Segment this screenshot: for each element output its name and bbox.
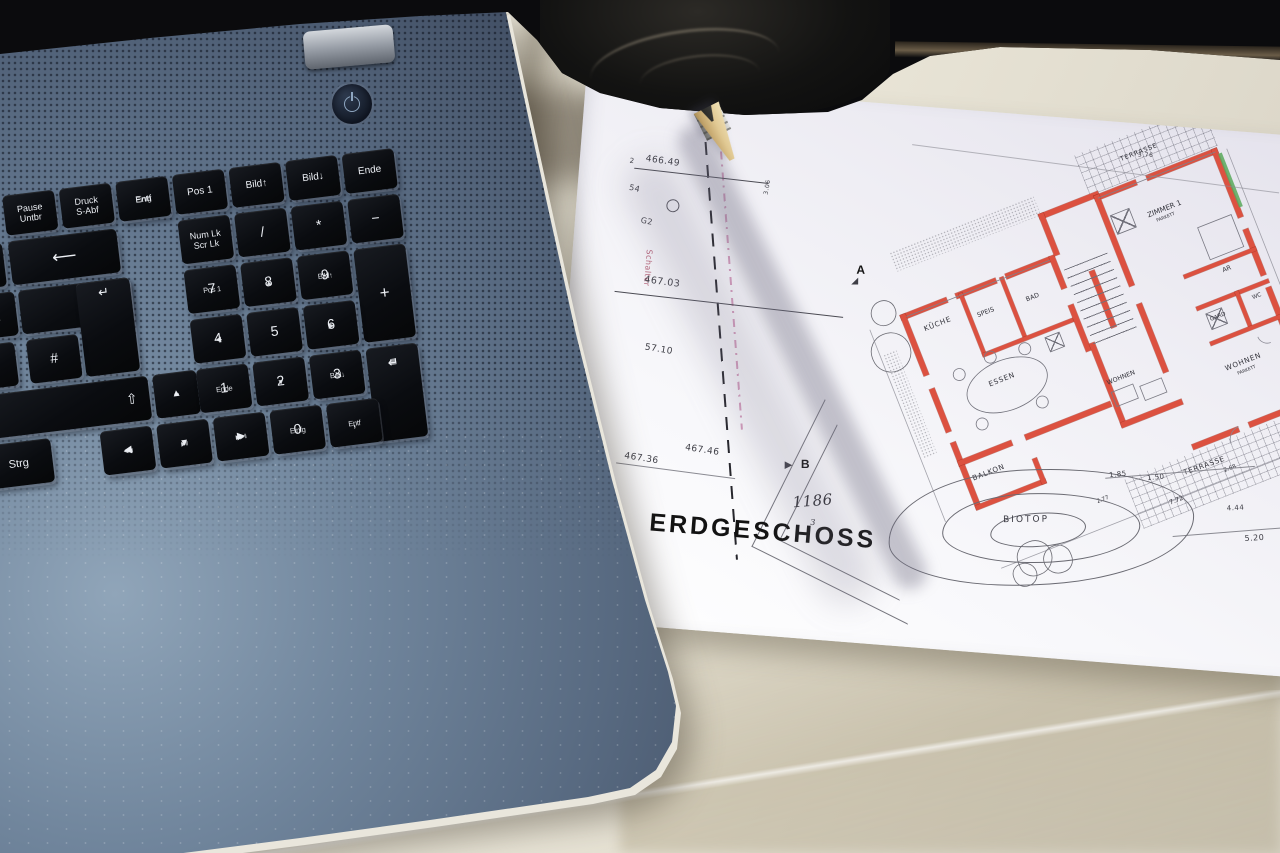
key-sublabel: Entf — [348, 419, 361, 429]
key-kp1: 1Ende — [196, 363, 253, 413]
key-label: ↵ — [97, 285, 110, 301]
key-sublabel: ▶‖ — [181, 441, 188, 448]
key-label: ⇧ — [125, 391, 139, 408]
key-kp-plus: + — [353, 243, 416, 343]
key-kp-multiply: * — [290, 201, 347, 251]
key-label: Bild↓ — [302, 171, 325, 185]
key-druck: Druck S-Abf — [59, 183, 115, 229]
key-enter: ↵ — [75, 277, 140, 377]
plan-label: A — [856, 264, 865, 276]
key-sublabel: ▭ — [174, 392, 180, 399]
key-sublabel: ▶ — [328, 321, 334, 330]
key-label: 5 — [270, 324, 280, 341]
key-sublabel: Bild↓ — [330, 370, 346, 380]
plan-label: BIOTOP — [1003, 516, 1049, 525]
key-sublabel: Einfg — [135, 195, 152, 205]
key-ende: Ende — [341, 148, 397, 194]
key-arrow-up: ▲▭ — [152, 370, 201, 419]
key-kp-divide: / — [234, 208, 291, 258]
laptop-hinge — [303, 24, 396, 70]
key-label: Pause Untbr — [16, 201, 44, 224]
key-label: / — [259, 225, 265, 241]
key-label: ⟵ — [51, 246, 78, 268]
photo-scene: KÜCHESPEISBADESSENBALKONZIMMER 1PARKETTA… — [0, 0, 1280, 853]
key-label: * — [315, 217, 322, 233]
key-kp3: 3Bild↓ — [309, 349, 366, 399]
key-label: Druck S-Abf — [74, 194, 100, 217]
power-button — [330, 82, 374, 126]
key-label: − — [371, 210, 381, 227]
plan-label: 1.50 — [1147, 474, 1165, 483]
laptop: Pause UntbrDruck S-AbfEntfEinfgPos 1Bild… — [0, 0, 720, 853]
key-kp6: 6▶ — [303, 300, 360, 350]
key-bild-down: Bild↓ — [285, 155, 341, 201]
key-kp8: 8▲ — [240, 257, 297, 307]
keyboard: Pause UntbrDruck S-AbfEntfEinfgPos 1Bild… — [2, 139, 506, 504]
key-arrow-left: ◀◀◀ — [99, 426, 156, 476]
key-kp7: 7Pos 1 — [183, 264, 240, 314]
key-label: # — [49, 351, 59, 368]
key-sublabel: Pos 1 — [203, 285, 222, 295]
key-bild-up: Bild↑ — [228, 162, 284, 208]
key-pause: Pause Untbr — [2, 190, 58, 236]
key-backspace: ⟵ — [8, 228, 122, 285]
key-label: + — [379, 283, 391, 303]
key-sublabel: ◀ — [215, 335, 221, 344]
key-sublabel: ▶▶‖ — [235, 434, 247, 442]
key-kp9: 9Bild↑ — [297, 250, 354, 300]
key-label: Ende — [357, 164, 382, 178]
key-sublabel: Bild↑ — [317, 271, 333, 281]
key-hash: # — [26, 334, 83, 384]
key-sublabel: ▲ — [265, 279, 273, 288]
key-sublabel: Einfg — [290, 426, 307, 436]
key-kp5: 5 — [246, 307, 303, 357]
key-sublabel: ◀◀ — [123, 448, 132, 456]
plan-label: ◢ — [851, 277, 859, 286]
key-pos1: Pos 1 — [172, 169, 228, 215]
laptop-deck: Pause UntbrDruck S-AbfEntfEinfgPos 1Bild… — [0, 0, 720, 853]
key-label: Strg — [8, 457, 30, 472]
plan-label: 5.20 — [1244, 534, 1264, 543]
key-arrow-right: ▶▶▶‖ — [213, 412, 270, 462]
key-entf: EntfEinfg — [115, 176, 171, 222]
key-plus-tilde: * + ~ — [0, 291, 19, 340]
key-sublabel: Ende — [216, 384, 233, 394]
key-arrow-down: ▼▶‖ — [156, 419, 213, 469]
key-kp-minus: − — [347, 194, 404, 244]
key-numlk: Num Lk Scr Lk — [177, 214, 234, 264]
key-comma: ,Entf — [326, 398, 383, 448]
key-kp0: 0Einfg — [269, 405, 326, 455]
plan-label: 1.85 — [1109, 471, 1127, 480]
key-label: Bild↑ — [245, 178, 268, 192]
key-sublabel: ▼ — [277, 378, 285, 387]
plan-label: 3.76 — [1138, 153, 1154, 159]
key-label: Pos 1 — [187, 185, 214, 199]
key-label: * + ~ — [0, 305, 1, 327]
key-kp4: 4◀ — [190, 314, 247, 364]
key-kp2: 2▼ — [252, 356, 309, 406]
key-sublabel: ▦ — [389, 357, 397, 366]
key-strg: Strg — [0, 438, 55, 490]
plan-label: 4.44 — [1227, 504, 1245, 512]
key-label: Num Lk Scr Lk — [189, 228, 222, 252]
